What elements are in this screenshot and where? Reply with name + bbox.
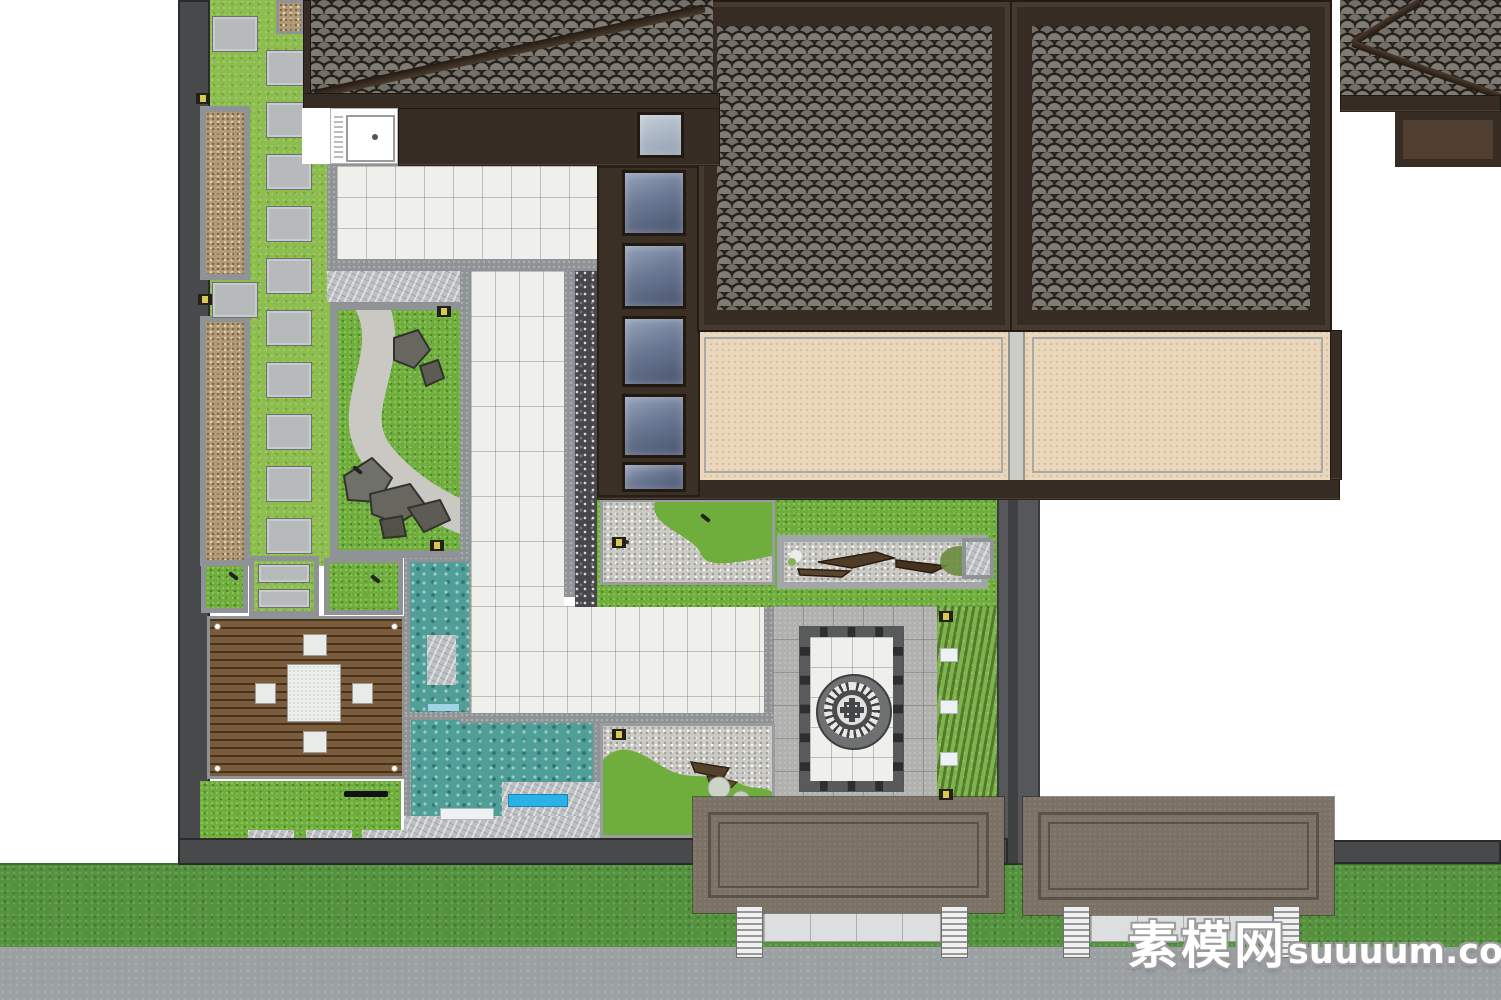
- driftwood-penjing: [784, 542, 981, 582]
- pool-2-step-slab: [440, 808, 494, 820]
- hip-roof-northeast: [1340, 0, 1501, 112]
- stepping-stone: [266, 414, 312, 450]
- walkway-border: [460, 271, 471, 561]
- window-pane: [622, 243, 686, 309]
- roof-tiles: [1032, 26, 1310, 310]
- landscape-plan-canvas: 素模网suuuum.com: [0, 0, 1501, 1000]
- stepping-stone: [266, 518, 312, 554]
- rock-garden: [330, 302, 470, 558]
- pool-2-blue-spout: [508, 794, 568, 807]
- pebble-planter-1: [200, 106, 250, 280]
- sink-grate: [334, 116, 343, 158]
- stepping-stone: [266, 258, 312, 294]
- tea-table: [287, 664, 341, 722]
- pool-1-weir: [428, 704, 459, 711]
- outdoor-sink: [330, 108, 398, 164]
- walkway-border: [460, 713, 776, 723]
- deck-corner-dot: [214, 623, 221, 630]
- courtyard-feature-panel: [800, 627, 903, 791]
- stepping-stone: [212, 16, 258, 52]
- stool-west: [255, 683, 276, 704]
- shrub-strip-stone: [940, 648, 958, 662]
- lawn-east-paver: [962, 538, 994, 579]
- window-pane: [622, 170, 686, 236]
- pool-1-platform: [427, 635, 456, 685]
- stool-south: [303, 731, 327, 753]
- hip-roof-northwest: [303, 0, 720, 112]
- stepping-stone: [266, 206, 312, 242]
- window-pane: [622, 316, 686, 387]
- walkway-horizontal: [471, 606, 764, 713]
- deck-corner-dot: [214, 765, 221, 772]
- gate-threshold-paving-west: [763, 908, 941, 942]
- stool-east: [352, 683, 373, 704]
- stepping-stone: [266, 466, 312, 502]
- stepping-stone: [266, 310, 312, 346]
- coin-motif-medallion: [816, 674, 892, 750]
- curved-gravel-garden-north: [600, 499, 775, 585]
- perimeter-wall-right: [1330, 840, 1501, 864]
- curved-lawn-edge: [603, 502, 772, 582]
- roof-eave: [1340, 95, 1501, 112]
- entry-gate-canopy-west: [693, 797, 1004, 913]
- shrub-strip-stone: [940, 752, 958, 766]
- watermark-cn-text: 素模网: [1128, 906, 1287, 978]
- garden-lamp-marker: [430, 540, 444, 551]
- main-roof-east: [1010, 0, 1332, 332]
- building-south-eave: [597, 478, 1340, 500]
- interior-east-wall-column: [1330, 330, 1342, 480]
- stool-north: [303, 634, 327, 656]
- white-tile-terrace: [337, 166, 597, 259]
- window-pane: [622, 394, 686, 458]
- inner-wall-with-windows: [597, 166, 700, 497]
- lawn-square-2: [324, 558, 403, 615]
- pebble-planter-2: [200, 316, 250, 566]
- roof-edge: [303, 0, 311, 95]
- paver-slab: [258, 564, 310, 583]
- shrub-strip-stone: [940, 700, 958, 714]
- watermark-latin-text: suuuum.com: [1288, 932, 1501, 972]
- bench-marker: [344, 791, 388, 797]
- roof-tiles: [717, 26, 992, 310]
- main-roof-west: [697, 0, 1012, 332]
- garden-lamp-marker: [612, 729, 626, 740]
- gate-column-base: [941, 906, 968, 958]
- window-pane-small: [637, 112, 684, 158]
- stepping-stone: [266, 362, 312, 398]
- garden-lamp-marker: [939, 789, 953, 800]
- stepping-stone: [212, 282, 258, 318]
- pebble-drain-strip-vertical: [575, 271, 599, 597]
- walkway-border: [564, 271, 575, 597]
- penjing-planter-box: [777, 535, 988, 589]
- garden-lamp-marker: [612, 537, 626, 548]
- medallion-core: [837, 695, 867, 725]
- garden-lamp-marker: [939, 611, 953, 622]
- rock-garden-path-and-stones: [338, 310, 462, 550]
- deck-corner-dot: [391, 623, 398, 630]
- interior-floor-east: [1025, 330, 1330, 480]
- deck-corner-dot: [391, 765, 398, 772]
- lawn-square-1: [201, 561, 248, 613]
- garden-lamp-marker: [198, 294, 212, 305]
- gate-column-base: [736, 906, 763, 958]
- medallion-core-square: [844, 702, 860, 718]
- garden-lamp-marker: [196, 93, 210, 104]
- sink-tap-icon: [372, 134, 378, 140]
- sink-basin: [346, 115, 395, 162]
- pebble-planter-top: [276, 0, 304, 34]
- garden-lamp-marker: [437, 306, 451, 317]
- watermark: 素模网suuuum.com: [1128, 906, 1501, 978]
- paver-slab: [258, 589, 310, 608]
- window-pane: [622, 462, 686, 492]
- gate-column-base: [1063, 906, 1090, 958]
- entry-gate-canopy-east: [1023, 797, 1334, 915]
- interior-floor-west: [697, 330, 1010, 480]
- roof-wall-block: [1395, 112, 1501, 167]
- timber-deck: [207, 616, 405, 779]
- stone-strip: [327, 271, 467, 302]
